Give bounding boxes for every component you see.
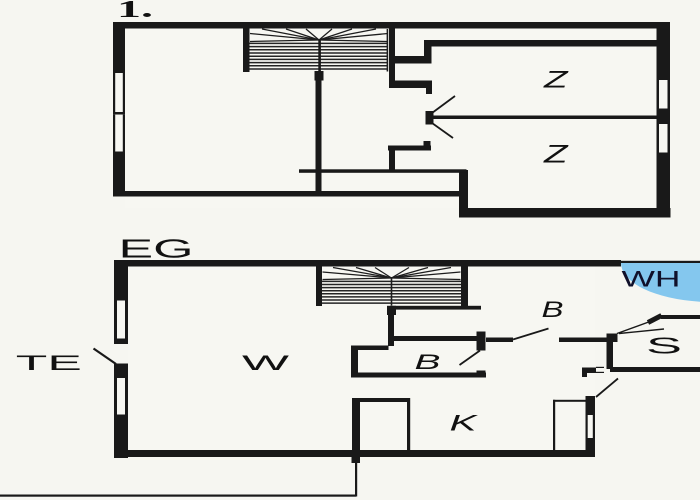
svg-text:1.: 1. bbox=[117, 0, 153, 23]
svg-text:W: W bbox=[242, 351, 291, 375]
svg-text:TE: TE bbox=[16, 351, 82, 375]
svg-text:Z: Z bbox=[542, 141, 568, 169]
svg-text:B: B bbox=[415, 351, 441, 374]
svg-text:K: K bbox=[450, 411, 479, 436]
svg-text:Z: Z bbox=[542, 67, 569, 94]
svg-text:EG: EG bbox=[119, 234, 194, 264]
svg-text:WH: WH bbox=[622, 267, 681, 292]
svg-text:S: S bbox=[646, 333, 682, 359]
svg-text:B: B bbox=[542, 297, 564, 322]
